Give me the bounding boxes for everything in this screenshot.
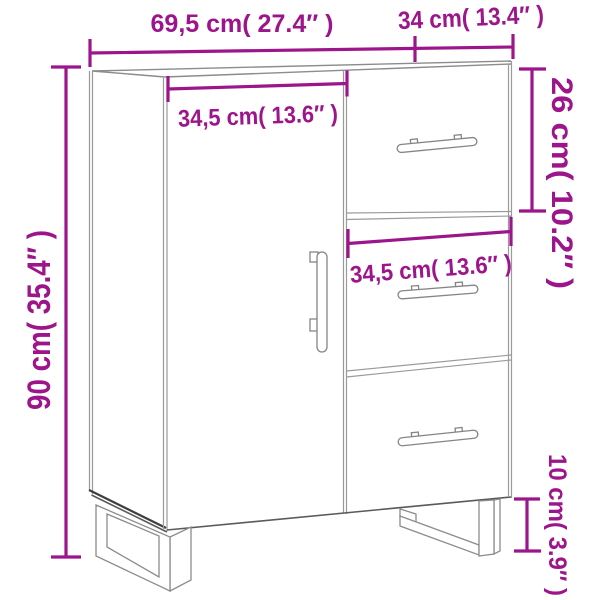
left-leg-side-face — [170, 527, 191, 591]
dim-line — [519, 69, 546, 211]
dim-height: 90 cm( 35.4″ ) — [21, 67, 81, 557]
right-leg-bar-side — [494, 499, 500, 554]
dim-label-width: 69,5 cm( 27.4″ ) — [151, 10, 334, 38]
dim-line — [514, 499, 541, 551]
dim-label-door-width: 34,5 cm( 13.6″ ) — [178, 100, 339, 133]
drawer-handle-bar — [398, 285, 478, 299]
drawer-divider-1a — [346, 212, 511, 214]
cabinet-side-panel — [89, 71, 167, 532]
door-handle-bar — [317, 252, 327, 352]
dim-leg-height: 10 cm( 3.9″ ) — [514, 454, 571, 596]
dim-drawer-width: 34,5 cm( 13.6″ ) — [348, 217, 513, 289]
side-top-edge — [92, 71, 165, 77]
dim-depth: 34 cm( 13.4″ ) — [397, 1, 544, 35]
cabinet-top-face — [92, 61, 511, 77]
drawer-handle-bar — [398, 430, 478, 446]
front-top-edge — [165, 64, 511, 77]
diagram-canvas: 69,5 cm( 27.4″ ) 34 cm( 13.4″ ) 90 cm( 3… — [0, 0, 600, 600]
drawer-divider-1b — [346, 216, 511, 220]
front-bottom-edge — [167, 497, 511, 530]
dim-label-drawer-width: 34,5 cm( 13.6″ ) — [349, 250, 513, 289]
dimension-diagram: 69,5 cm( 27.4″ ) 34 cm( 13.4″ ) 90 cm( 3… — [0, 0, 600, 600]
left-leg-frame — [96, 505, 170, 591]
dim-label-height: 90 cm( 35.4″ ) — [21, 230, 57, 410]
right-leg — [400, 499, 500, 556]
cabinet — [89, 61, 512, 591]
right-leg-bar — [479, 500, 494, 556]
dim-label-leg-height: 10 cm( 3.9″ ) — [543, 454, 571, 596]
dim-label-top-drawer: 26 cm( 10.2″ ) — [545, 77, 578, 289]
dim-label-depth: 34 cm( 13.4″ ) — [397, 1, 544, 35]
dim-door-width: 34,5 cm( 13.6″ ) — [168, 71, 347, 133]
door-handle[interactable] — [310, 252, 327, 352]
drawer-handle-bar — [397, 137, 477, 153]
dim-top-drawer-height: 26 cm( 10.2″ ) — [519, 69, 578, 289]
drawer-handle-3[interactable] — [397, 426, 478, 446]
drawer-handle-1[interactable] — [396, 133, 477, 153]
right-leg-slanted-bar — [400, 516, 479, 555]
